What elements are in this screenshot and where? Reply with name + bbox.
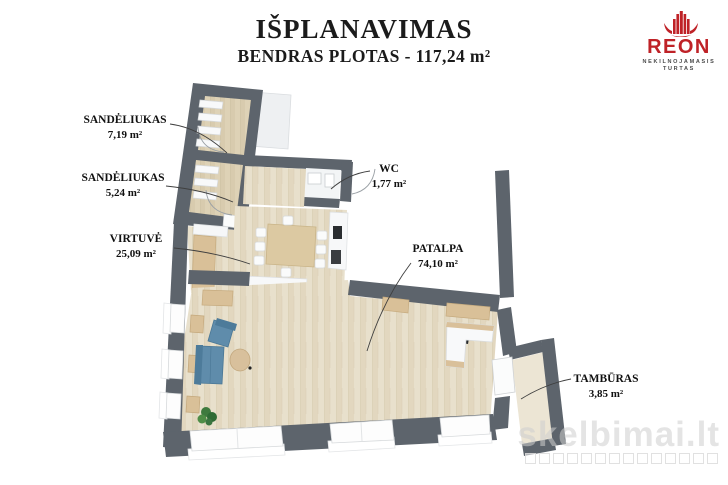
logo-tagline: NEKILNOJAMASIS TURTAS bbox=[633, 59, 725, 73]
room-label-tamburas: TAMBŪRAS 3,85 m² bbox=[546, 372, 666, 402]
sideboard bbox=[202, 290, 233, 306]
reon-buildings-icon bbox=[659, 10, 699, 37]
room-label-sandeliukas-2: SANDĖLIUKAS 5,24 m² bbox=[53, 171, 193, 201]
coffee-table bbox=[230, 349, 250, 371]
wc-toilet bbox=[325, 174, 334, 187]
room-label-sandeliukas-1: SANDĖLIUKAS 7,19 m² bbox=[55, 113, 195, 143]
logo-wordmark: REON bbox=[633, 37, 725, 57]
floor-lamp bbox=[248, 366, 251, 369]
room-label-patalpa: PATALPA 74,10 m² bbox=[378, 242, 498, 272]
reon-logo: REON NEKILNOJAMASIS TURTAS bbox=[633, 10, 725, 73]
sideboard bbox=[382, 297, 409, 313]
page-title: IŠPLANAVIMAS bbox=[0, 14, 728, 45]
cooktop bbox=[333, 226, 342, 239]
entry-door-leaf bbox=[492, 357, 515, 395]
dining-table bbox=[266, 224, 316, 267]
kitchen-floor-upper bbox=[243, 166, 306, 207]
page-subtitle: BENDRAS PLOTAS - 117,24 m² bbox=[0, 46, 728, 67]
floorplan-advert: IŠPLANAVIMAS BENDRAS PLOTAS - 117,24 m² … bbox=[0, 0, 728, 485]
room-label-wc: WC 1,77 m² bbox=[339, 162, 439, 192]
neighbour-wall bbox=[495, 170, 514, 298]
side-table bbox=[186, 396, 200, 413]
wc-sink bbox=[308, 173, 321, 184]
room-label-virtuve: VIRTUVĖ 25,09 m² bbox=[66, 232, 206, 262]
side-table bbox=[190, 315, 204, 333]
oven bbox=[331, 250, 341, 264]
